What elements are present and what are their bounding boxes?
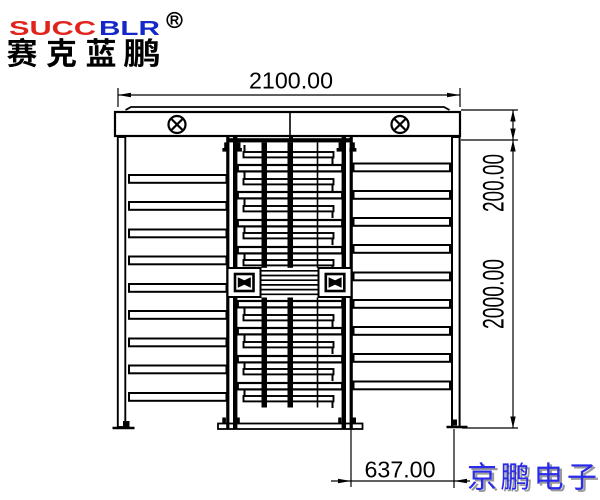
svg-text:2000.00: 2000.00 xyxy=(478,259,511,329)
svg-text:200.00: 200.00 xyxy=(478,154,511,212)
svg-text:2100.00: 2100.00 xyxy=(249,68,333,94)
svg-text:SUCC: SUCC xyxy=(9,18,96,40)
svg-text:BLR: BLR xyxy=(99,18,161,40)
svg-text:637.00: 637.00 xyxy=(365,457,436,483)
svg-text:R: R xyxy=(170,13,180,28)
